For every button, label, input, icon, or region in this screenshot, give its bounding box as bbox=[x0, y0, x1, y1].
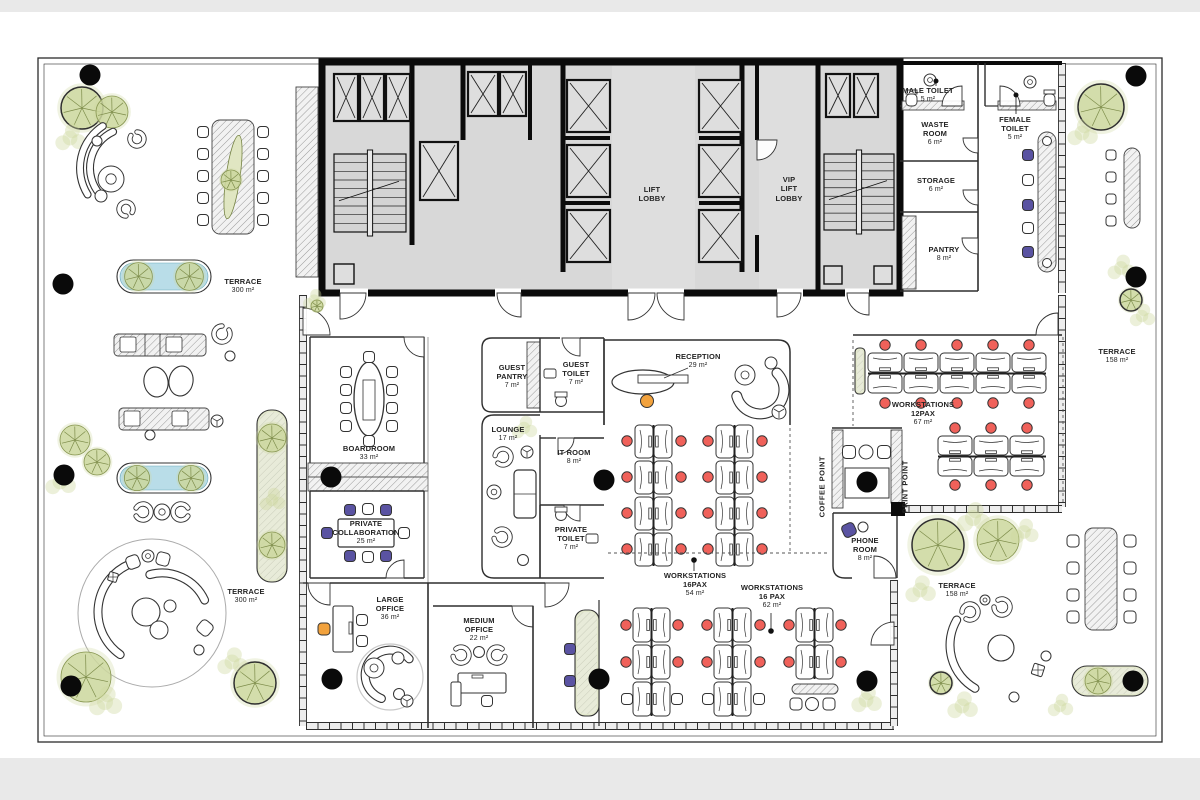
room-area: 5 m² bbox=[893, 96, 963, 105]
label-phone-room: PHONE ROOM8 m² bbox=[837, 536, 893, 564]
room-area: 62 m² bbox=[727, 602, 817, 611]
label-female-toilet: FEMALE TOILET5 m² bbox=[983, 115, 1047, 143]
label-boardroom: BOARDROOM33 m² bbox=[324, 444, 414, 463]
room-area: 17 m² bbox=[478, 435, 538, 444]
label-guest-pantry: GUEST PANTRY7 m² bbox=[482, 363, 542, 391]
room-name: TERRACE bbox=[922, 581, 992, 590]
room-area: 5 m² bbox=[983, 134, 1047, 143]
room-area: 7 m² bbox=[541, 544, 601, 553]
room-area: 36 m² bbox=[360, 614, 420, 623]
label-terrace-left-upper: TERRACE300 m² bbox=[208, 277, 278, 296]
room-area: 158 m² bbox=[1082, 357, 1152, 366]
label-reception: RECEPTION29 m² bbox=[658, 352, 738, 371]
room-name: TERRACE bbox=[1082, 347, 1152, 356]
room-name: MEDIUM OFFICE bbox=[447, 616, 511, 635]
room-name: LARGE OFFICE bbox=[360, 595, 420, 614]
room-area: 22 m² bbox=[447, 635, 511, 644]
floor-plan-page: MALE TOILET5 m² WASTE ROOM6 m² STORAGE6 … bbox=[0, 0, 1200, 800]
label-coffee-point: COFFEE POINT bbox=[817, 447, 826, 527]
room-name: FEMALE TOILET bbox=[983, 115, 1047, 134]
workstations-16pax-b bbox=[621, 608, 846, 716]
room-area: 25 m² bbox=[324, 538, 408, 547]
label-large-office: LARGE OFFICE36 m² bbox=[360, 595, 420, 623]
room-area: 8 m² bbox=[546, 458, 602, 467]
room-name: PHONE ROOM bbox=[837, 536, 893, 555]
label-medium-office: MEDIUM OFFICE22 m² bbox=[447, 616, 511, 644]
label-private-collaboration: PRIVATE COLLABORATION25 m² bbox=[324, 519, 408, 547]
label-print-point: PRINT POINT bbox=[900, 447, 909, 527]
room-name: IT ROOM bbox=[546, 448, 602, 457]
label-terrace-right-upper: TERRACE158 m² bbox=[1082, 347, 1152, 366]
room-name: MALE TOILET bbox=[893, 86, 963, 95]
room-name: PRIVATE TOILET bbox=[541, 525, 601, 544]
label-terrace-right-lower: TERRACE158 m² bbox=[922, 581, 992, 600]
room-name: TERRACE bbox=[211, 587, 281, 596]
label-guest-toilet: GUEST TOILET7 m² bbox=[546, 360, 606, 388]
room-name: PANTRY bbox=[914, 245, 974, 254]
room-name: WORKSTATIONS 16 PAX bbox=[727, 583, 817, 602]
room-area: 7 m² bbox=[482, 382, 542, 391]
room-name: STORAGE bbox=[906, 176, 966, 185]
room-area: 33 m² bbox=[324, 454, 414, 463]
room-area: 300 m² bbox=[208, 287, 278, 296]
room-name: GUEST TOILET bbox=[546, 360, 606, 379]
label-storage: STORAGE6 m² bbox=[906, 176, 966, 195]
room-area: 300 m² bbox=[211, 597, 281, 606]
coffee-point-furniture bbox=[843, 445, 891, 459]
label-vip-lift-lobby: VIP LIFT LOBBY bbox=[759, 175, 819, 203]
label-lift-lobby: LIFT LOBBY bbox=[622, 185, 682, 204]
room-name: TERRACE bbox=[208, 277, 278, 286]
room-name: BOARDROOM bbox=[324, 444, 414, 453]
room-area: 158 m² bbox=[922, 591, 992, 600]
room-area: 8 m² bbox=[837, 555, 893, 564]
room-name: LOUNGE bbox=[478, 425, 538, 434]
label-lounge: LOUNGE17 m² bbox=[478, 425, 538, 444]
room-name: WORKSTATIONS 12PAX bbox=[878, 400, 968, 419]
label-private-toilet: PRIVATE TOILET7 m² bbox=[541, 525, 601, 553]
room-area: 29 m² bbox=[658, 362, 738, 371]
room-area: 6 m² bbox=[906, 186, 966, 195]
label-male-toilet: MALE TOILET5 m² bbox=[893, 86, 963, 105]
room-area: 67 m² bbox=[878, 419, 968, 428]
label-terrace-left-lower: TERRACE300 m² bbox=[211, 587, 281, 606]
room-area: 7 m² bbox=[546, 379, 606, 388]
label-waste-room: WASTE ROOM6 m² bbox=[905, 120, 965, 148]
room-area: 8 m² bbox=[914, 255, 974, 264]
label-it-room: IT ROOM8 m² bbox=[546, 448, 602, 467]
zone-name: VIP LIFT LOBBY bbox=[759, 175, 819, 203]
zone-name: LIFT LOBBY bbox=[622, 185, 682, 204]
zone-name: PRINT POINT bbox=[900, 447, 909, 527]
room-name: RECEPTION bbox=[658, 352, 738, 361]
label-pantry: PANTRY8 m² bbox=[914, 245, 974, 264]
label-workstations-12pax: WORKSTATIONS 12PAX67 m² bbox=[878, 400, 968, 428]
room-area: 6 m² bbox=[905, 139, 965, 148]
room-name: PRIVATE COLLABORATION bbox=[324, 519, 408, 538]
room-name: GUEST PANTRY bbox=[482, 363, 542, 382]
room-name: WASTE ROOM bbox=[905, 120, 965, 139]
zone-name: COFFEE POINT bbox=[817, 447, 826, 527]
label-workstations-16pax-b: WORKSTATIONS 16 PAX62 m² bbox=[727, 583, 817, 611]
